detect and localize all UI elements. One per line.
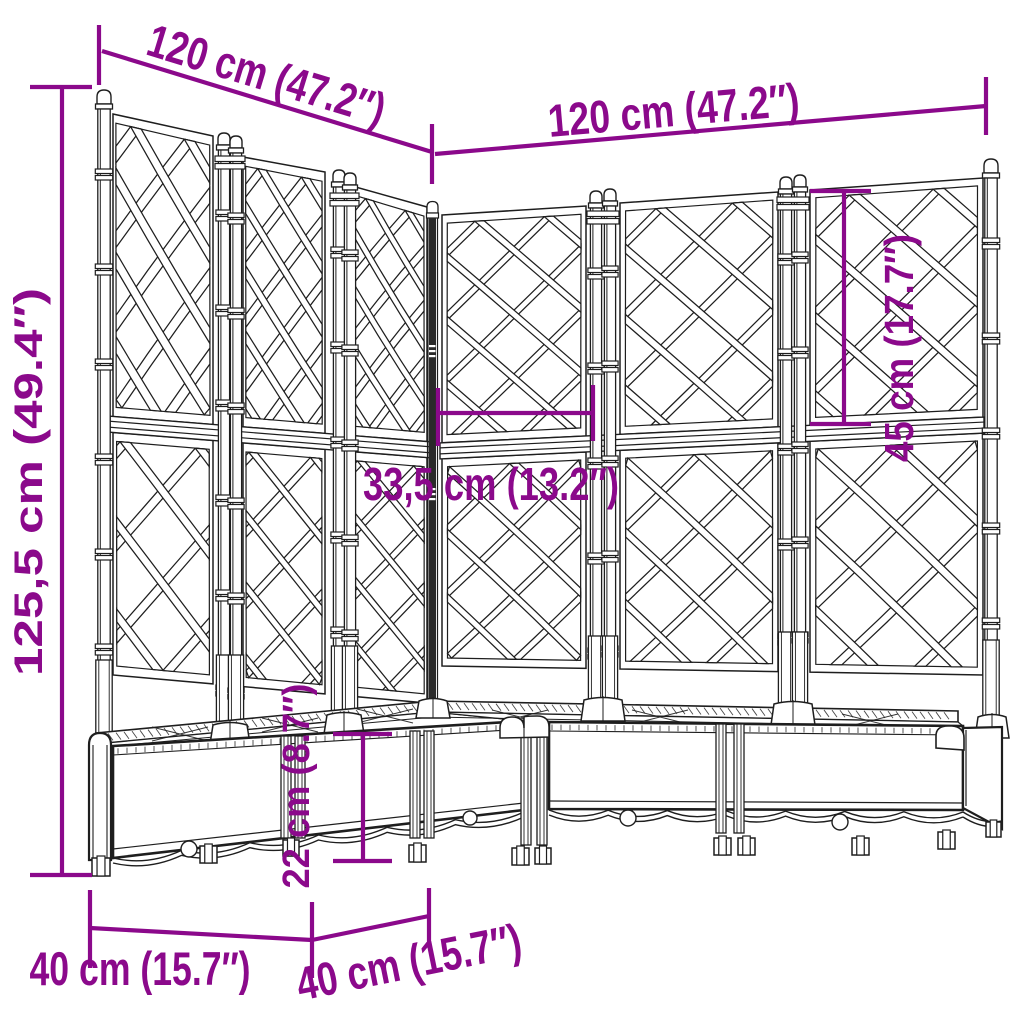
svg-text:33,5 cm (13.2″): 33,5 cm (13.2″) xyxy=(363,458,619,510)
svg-text:40 cm (15.7″): 40 cm (15.7″) xyxy=(29,942,250,995)
svg-text:125,5 cm (49.4″): 125,5 cm (49.4″) xyxy=(7,288,51,676)
svg-text:45 cm (17.7″): 45 cm (17.7″) xyxy=(876,234,922,462)
svg-text:22 cm (8.7″): 22 cm (8.7″) xyxy=(276,684,318,889)
